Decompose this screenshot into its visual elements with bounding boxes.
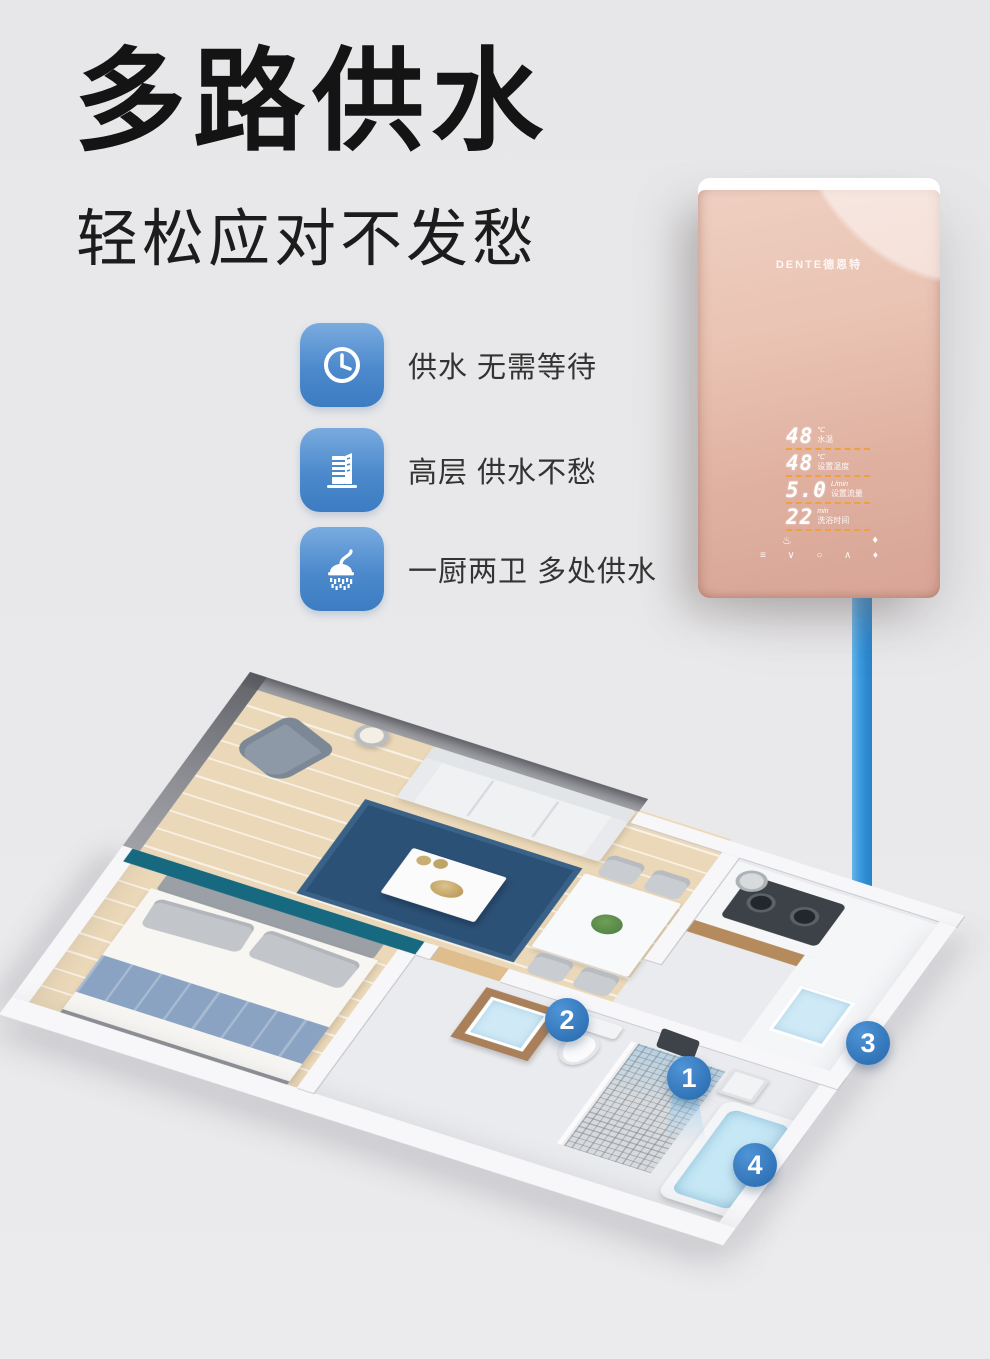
promo-page: 多路供水 轻松应对不发愁 供水 无需等待 xyxy=(0,0,990,1359)
menu-icon: ≡ xyxy=(760,550,766,561)
feature-text: 高层 供水不愁 xyxy=(408,449,597,491)
supply-marker-shower: 1 xyxy=(667,1056,711,1100)
drop-indicator-icon: ♦ xyxy=(872,534,878,547)
unit: L/min xyxy=(831,480,863,489)
touch-controls: ≡ ∨ ○ ∧ ♦ xyxy=(760,550,878,561)
page-subtitle: 轻松应对不发愁 xyxy=(76,188,538,278)
unit: ℃ xyxy=(817,426,833,435)
supply-marker-bathtub: 4 xyxy=(733,1143,777,1187)
display-row-set-temp: 48 ℃设置温度 xyxy=(786,453,870,477)
heater-display: 48 ℃水温 48 ℃设置温度 5.0 L/min设置流量 22 min洗浴时间 xyxy=(786,426,870,534)
building-icon xyxy=(300,428,384,512)
water-pipe xyxy=(852,596,872,910)
bath-time-value: 22 xyxy=(786,507,813,527)
shower-icon xyxy=(300,527,384,611)
set-temp-value: 48 xyxy=(786,453,813,473)
feature-row-multi: 一厨两卫 多处供水 xyxy=(300,527,657,611)
spray-icon: ♦ xyxy=(873,550,878,561)
page-title: 多路供水 xyxy=(74,36,550,168)
supply-marker-kitchen: 3 xyxy=(846,1021,890,1065)
feature-text: 供水 无需等待 xyxy=(408,344,597,386)
up-icon: ∧ xyxy=(844,550,851,561)
brand-logo: DENTE德恩特 xyxy=(698,256,940,272)
apartment-cutaway xyxy=(0,672,974,1245)
display-row-flow: 5.0 L/min设置流量 xyxy=(786,480,870,504)
flow-value: 5.0 xyxy=(786,480,827,500)
label: 设置流量 xyxy=(831,489,863,499)
mode-indicators: ♨ ♦ xyxy=(782,534,878,547)
water-temp-value: 48 xyxy=(786,426,813,446)
display-row-water-temp: 48 ℃水温 xyxy=(786,426,870,450)
label: 洗浴时间 xyxy=(817,516,849,526)
supply-marker-vanity: 2 xyxy=(545,998,589,1042)
water-heater: DENTE德恩特 48 ℃水温 48 ℃设置温度 5.0 L/min设置流量 2… xyxy=(698,178,940,598)
feature-row-wait: 供水 无需等待 xyxy=(300,323,597,407)
shower-indicator-icon: ♨ xyxy=(782,534,792,547)
label: 设置温度 xyxy=(817,462,849,472)
clock-icon xyxy=(300,323,384,407)
down-icon: ∨ xyxy=(787,550,794,561)
unit: min xyxy=(817,507,849,516)
power-icon: ○ xyxy=(816,550,822,561)
label: 水温 xyxy=(817,435,833,445)
feature-text: 一厨两卫 多处供水 xyxy=(408,548,657,590)
feature-row-highrise: 高层 供水不愁 xyxy=(300,428,597,512)
heater-front-panel: DENTE德恩特 48 ℃水温 48 ℃设置温度 5.0 L/min设置流量 2… xyxy=(698,190,940,598)
unit: ℃ xyxy=(817,453,849,462)
display-row-bath-time: 22 min洗浴时间 xyxy=(786,507,870,531)
